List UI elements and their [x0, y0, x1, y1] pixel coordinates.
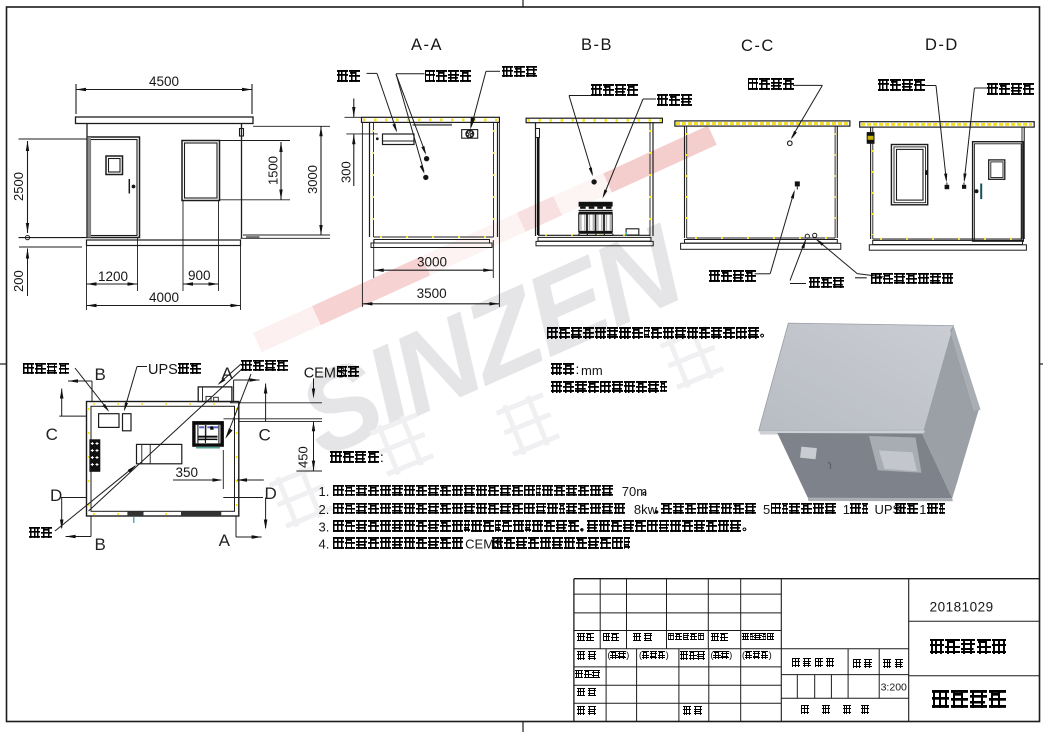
- svg-text:5: 5: [763, 502, 770, 517]
- svg-text:mm: mm: [581, 363, 603, 378]
- svg-text:D: D: [50, 486, 62, 505]
- svg-text:3.: 3.: [319, 520, 330, 535]
- svg-text:UPS: UPS: [148, 362, 178, 378]
- svg-text:4500: 4500: [149, 74, 179, 89]
- svg-text:B-B: B-B: [581, 36, 613, 54]
- svg-text:450: 450: [296, 446, 311, 468]
- svg-text:350: 350: [176, 465, 199, 480]
- svg-text:D: D: [265, 484, 277, 503]
- svg-text:D-D: D-D: [925, 36, 959, 54]
- svg-text:900: 900: [188, 268, 211, 283]
- svg-text:20181029: 20181029: [930, 600, 994, 615]
- svg-text:3000: 3000: [305, 165, 320, 194]
- svg-text:C-C: C-C: [741, 37, 775, 55]
- svg-text:300: 300: [339, 161, 354, 183]
- svg-text:1200: 1200: [98, 269, 128, 284]
- svg-text:3:200: 3:200: [881, 682, 907, 694]
- svg-text:200: 200: [11, 270, 26, 292]
- svg-text:1: 1: [919, 502, 926, 517]
- svg-text:1: 1: [843, 502, 850, 517]
- svg-text:2.: 2.: [319, 502, 330, 517]
- svg-text:1.: 1.: [319, 484, 330, 499]
- svg-text:C: C: [259, 426, 271, 445]
- svg-text:1500: 1500: [266, 156, 281, 185]
- svg-text:A: A: [219, 531, 231, 550]
- svg-text:4.: 4.: [319, 537, 330, 552]
- svg-text:B: B: [95, 365, 106, 384]
- svg-text:4000: 4000: [149, 290, 179, 305]
- svg-text:2500: 2500: [11, 172, 26, 201]
- svg-text:A-A: A-A: [411, 36, 443, 54]
- svg-text:B: B: [95, 535, 106, 554]
- svg-text:3500: 3500: [417, 286, 447, 301]
- svg-text:C: C: [46, 425, 58, 444]
- svg-text:3000: 3000: [417, 255, 447, 270]
